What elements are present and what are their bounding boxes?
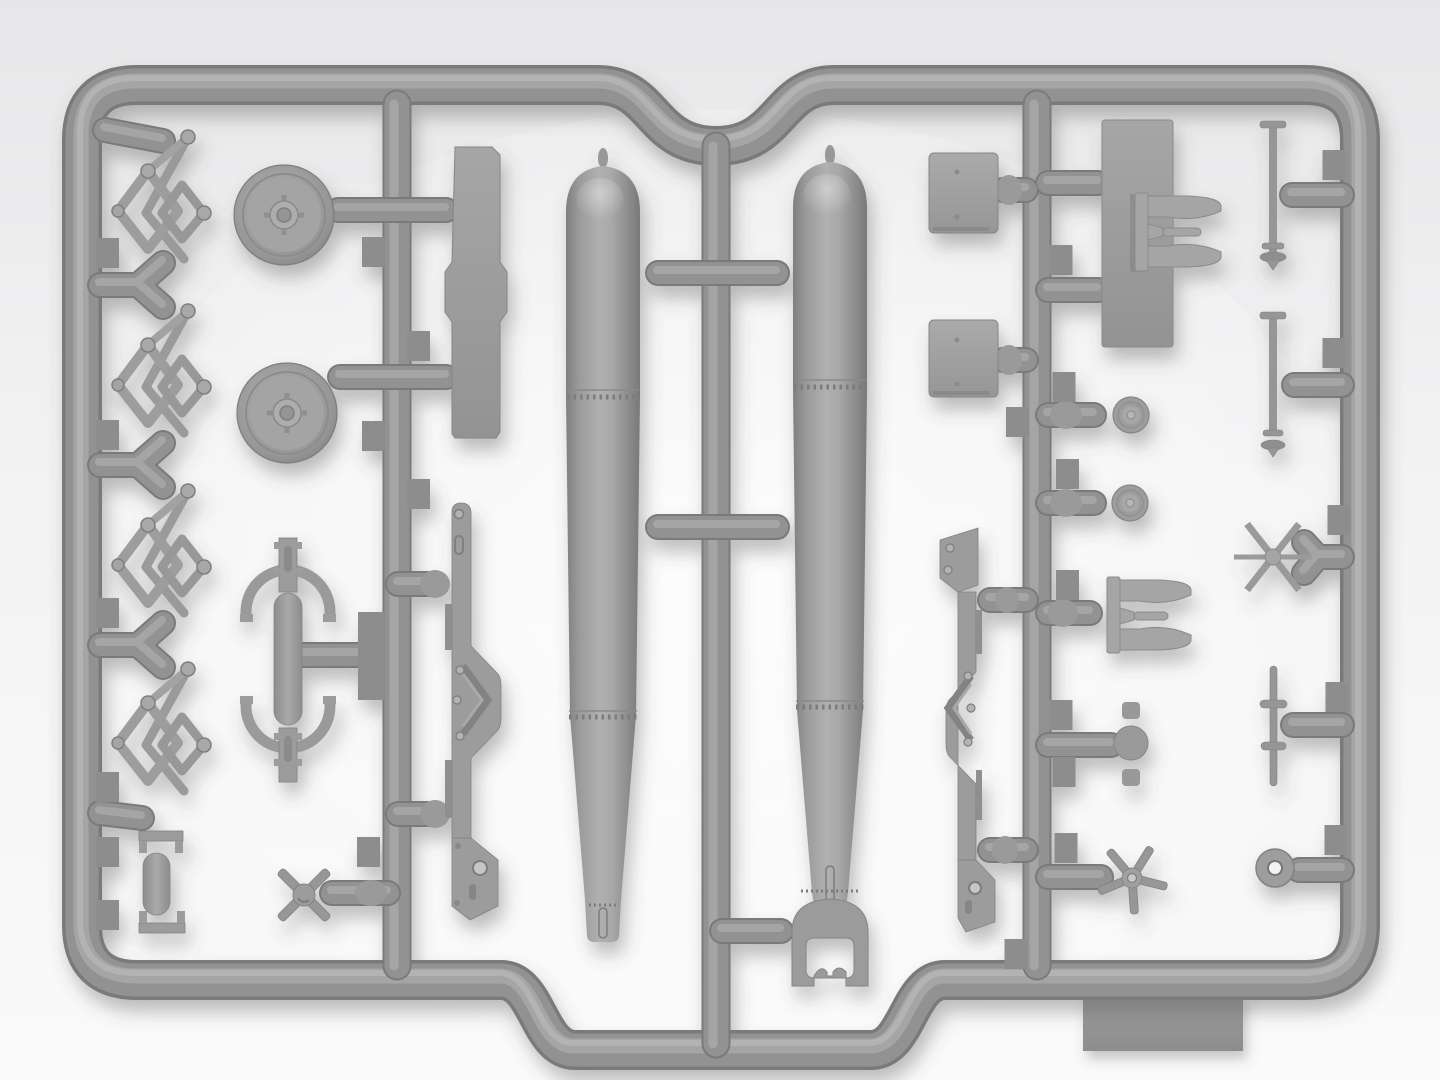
pulley-disc-part: [1113, 397, 1149, 433]
sprue-photo: Gray plastic model-kit sprue with two ae…: [0, 0, 1440, 1080]
gate-tab: [1323, 150, 1346, 180]
road-wheel-part: [237, 363, 337, 463]
gate-tab: [96, 420, 119, 450]
gate-tab: [96, 772, 119, 802]
gate-tab: [407, 331, 430, 361]
gate-tab: [1326, 682, 1349, 712]
gate-tab: [1053, 372, 1076, 402]
gate-tab: [1328, 505, 1351, 535]
gate-tab: [1005, 939, 1028, 969]
gate-tab: [1050, 245, 1073, 275]
gate-tab: [1006, 407, 1029, 437]
molding-tab: [1083, 993, 1243, 1051]
road-wheel-part: [234, 165, 334, 265]
sprue-photo-svg: Gray plastic model-kit sprue with two ae…: [0, 0, 1440, 1080]
gate-tab: [1055, 833, 1078, 863]
gate-tab: [96, 598, 119, 628]
gate-tab: [1323, 338, 1346, 368]
gate-tab: [96, 837, 119, 867]
washer-ring-part: [1256, 849, 1294, 887]
gate-tab: [407, 479, 430, 509]
gate-tab: [1050, 700, 1073, 730]
notched-plate-part: [445, 147, 507, 438]
gate-tab: [362, 421, 385, 451]
pulley-disc-part: [1112, 485, 1148, 521]
gate-tab: [1053, 757, 1076, 787]
gate-tab: [357, 837, 380, 867]
gate-plate: [358, 612, 386, 700]
gate-tab: [96, 238, 119, 268]
gate-tab: [96, 900, 119, 930]
torpedo-2-part: [793, 145, 867, 905]
gate-tab: [362, 237, 385, 267]
gate-tab: [1056, 459, 1079, 489]
gate-tab: [1325, 825, 1348, 855]
gate-tab: [1056, 570, 1079, 600]
